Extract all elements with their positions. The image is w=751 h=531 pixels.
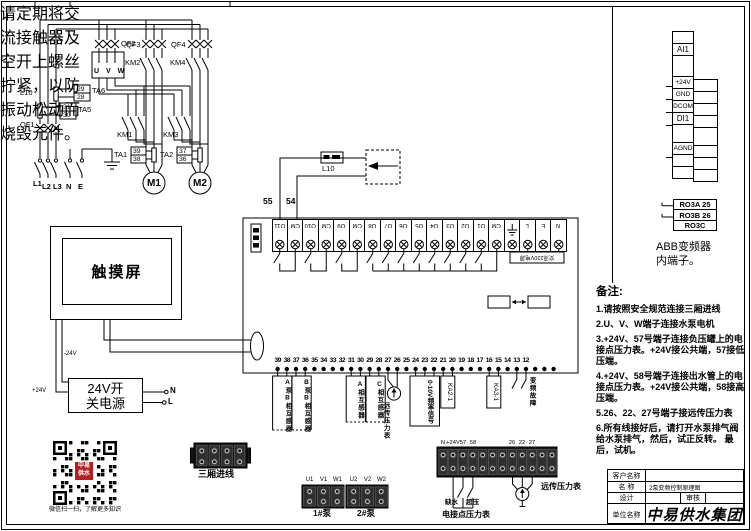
notes-title: 备注:	[596, 283, 746, 299]
freq-signal-label: 0-10V频率信号	[417, 379, 433, 424]
phase-label-e: E	[78, 183, 83, 191]
terminal-cell: O10	[303, 219, 319, 252]
motor-m1-label: M1	[143, 178, 165, 189]
psu-n-label: N	[170, 387, 176, 396]
phase-label-l1: L1	[33, 180, 42, 188]
remote-gauge-label: 远传压力表	[382, 402, 389, 444]
terminal-cell: CM	[319, 219, 335, 252]
ka3-contact-label: KA3-1	[489, 379, 499, 406]
design-value	[646, 493, 681, 504]
hmi-label: 触摸屏	[91, 261, 142, 282]
mains-in-label: 三厢进线	[198, 470, 234, 480]
pressure-label-22: 22	[517, 440, 527, 446]
wire-label-54: 54	[286, 197, 295, 206]
incoming-disconnects	[35, 149, 84, 178]
remote-gauge-label-2: 远传压力表	[541, 483, 581, 492]
sensor-label: L10	[322, 165, 335, 173]
switch-low-label: 缺水	[445, 499, 458, 506]
name-label: 名 称	[608, 482, 646, 493]
terminal-cell: O6	[396, 219, 412, 252]
pressure-label-26: 26	[507, 440, 517, 446]
contact-gauge-label: 电接点压力表	[442, 511, 490, 520]
line-label-l10: L10	[20, 89, 33, 97]
ct-label-ta6: TA6	[92, 87, 105, 95]
hmi-screen: 触摸屏	[62, 238, 172, 305]
breaker-label-qf1: QF1	[20, 121, 35, 129]
ka2-contact-label: KA2-1	[443, 379, 453, 406]
terminal-cell: CM	[489, 219, 505, 252]
ct-label-ta1: TA1	[114, 151, 127, 159]
contactor-label-km1: KM1	[117, 131, 132, 139]
ta2-terminal: 36	[179, 156, 187, 163]
contactor-label-km4: KM4	[170, 59, 185, 67]
name-value: 2泵变频控制原理图	[646, 482, 743, 493]
terminal-cell: CM	[288, 219, 304, 252]
customer-label: 客户名称	[608, 470, 646, 482]
contactor-label-km2: KM2	[125, 59, 140, 67]
terminal-cell: O5	[412, 219, 428, 252]
pressure-label-58: 58	[468, 440, 478, 446]
vfd-fault-label: 变频故障	[528, 377, 535, 415]
note-item: 5.26、22、27号端子接远传压力表	[596, 408, 746, 419]
psu-plus24-label: +24V	[32, 388, 46, 395]
controller-bottom-terminal-numbers: 39 38 37 36 35 34 33 32 31 30 29 28 27 2…	[273, 357, 530, 364]
pump1-label: 1#泵	[313, 509, 331, 518]
ta5-terminal: 30	[63, 112, 71, 119]
ta6-terminal: 29	[77, 86, 85, 93]
phase-label-l3: L3	[53, 183, 62, 191]
psu-l-label: L	[168, 398, 173, 407]
terminal-cell: N	[551, 219, 567, 252]
note-item: 6.所有线接好后，请打开水泵排气阀给水泵排气，然后，试正反转。 最后，试机。	[596, 423, 746, 456]
terminal-cell: O11	[272, 219, 288, 252]
terminal-cell-earth	[505, 219, 521, 252]
abb-relay-terminal-table: RO3A 25 RO3B 26 RO3C	[673, 200, 717, 231]
pump2-terminal-v2: V2	[361, 477, 374, 484]
contactor-label-km3: KM3	[163, 131, 178, 139]
pump1-terminal-v1: V1	[317, 477, 330, 484]
phase-label-n: N	[66, 183, 71, 191]
ct-label-ta5: TA5	[78, 106, 91, 114]
qr-logo: 中易供水	[75, 462, 93, 480]
ct-label-ta2: TA2	[160, 151, 173, 159]
review-value	[706, 493, 743, 504]
pump1-terminal-w1: W1	[331, 477, 344, 484]
breaker-label-qf4: QF4	[171, 41, 186, 49]
note-item: 3.+24V、57号端子连接负压罐上的电接点压力表。+24V接公共端，57接低压…	[596, 334, 746, 367]
terminal-cell: O7	[381, 219, 397, 252]
ta5-terminal: 31	[63, 104, 71, 111]
terminal-cell: O2	[458, 219, 474, 252]
notes-section: 备注: 1.请按照安全规范连接三厢进线 2.U、V、W端子连接水泵电机 3.+2…	[596, 283, 746, 460]
pressure-label-57: 57	[458, 440, 468, 446]
ta1-terminal: 38	[133, 156, 141, 163]
breaker-label-qf3: QF3	[126, 41, 141, 49]
ct-phase-c-label: C相互感器	[367, 379, 383, 420]
note-item: 2.U、V、W端子连接水泵电机	[596, 319, 746, 330]
pump1-block	[302, 485, 344, 508]
pump2-block	[346, 485, 388, 508]
vfd-uvw-label: U V W	[94, 68, 127, 76]
company-label: 单位名称	[608, 504, 646, 525]
note-item: 1.请按照安全规范连接三厢进线	[596, 304, 746, 315]
pump2-label: 2#泵	[357, 509, 375, 518]
phase-label-l2: L2	[42, 183, 51, 191]
note-item: 4.+24V、58号端子连接出水管上的电接点压力表。+24V接公共端，58接高压…	[596, 371, 746, 404]
abb-caption-line2: 内端子。	[656, 255, 700, 267]
controller-top-terminal-strip: O11 CM O10 CM O9 CM O8 O7 O6 O5 O4 O3 O2…	[272, 219, 567, 252]
customer-value	[646, 470, 743, 482]
terminal-cell: O9	[334, 219, 350, 252]
review-label: 审核	[681, 493, 706, 504]
pressure-label-27: 27	[527, 440, 537, 446]
pump2-terminal-w2: W2	[375, 477, 388, 484]
terminal-cell: E	[536, 219, 552, 252]
abb-io-terminal-column: AI1 +24V GND DCOM DI1 AGND	[672, 32, 694, 179]
wire-label-55: 55	[263, 197, 272, 206]
company-value: 中易供水集团	[646, 504, 743, 525]
psu-box: 24V开关电源	[68, 378, 143, 413]
terminal-cell: O1	[474, 219, 490, 252]
terminal-cell: CM	[350, 219, 366, 252]
sensor-symbol	[280, 150, 400, 219]
ta6-terminal: 28	[77, 94, 85, 101]
ct-phase-a-label: A相互感器	[348, 379, 364, 420]
terminal-cell: O8	[365, 219, 381, 252]
abb-caption-line1: ABB变频器	[656, 241, 711, 253]
mains-box-label: 交流220V电源	[510, 254, 564, 260]
psu-minus24-label: -24V	[64, 351, 77, 358]
terminal-cell: O3	[443, 219, 459, 252]
ta2-terminal: 37	[179, 148, 187, 155]
terminal-cell: O4	[427, 219, 443, 252]
schematic-page: { "warning":{"lines":["请定期将交","流接触器及","空…	[0, 0, 751, 531]
ta1-terminal: 39	[133, 148, 141, 155]
bottom-terminal-dots	[275, 367, 555, 371]
title-block: 客户名称 名 称 2泵变频控制原理图 设计 审核 单位名称 中易供水集团	[607, 469, 744, 524]
ct-pump-a-label: A泵B相互感器	[274, 379, 291, 429]
motor-m2-label: M2	[189, 178, 211, 189]
terminal-cell: L	[520, 219, 536, 252]
switch-high-label: 超压	[466, 499, 479, 506]
pump2-terminal-u2: U2	[347, 477, 360, 484]
abb-io-terminal-column-right	[693, 80, 718, 182]
design-label: 设计	[608, 493, 646, 504]
ct-pump-b-label: B泵B相互感器	[293, 379, 310, 429]
mains-in-block	[191, 443, 251, 468]
qr-caption: 微信扫一扫，了解更多知识	[39, 507, 131, 514]
serial-port-icon	[251, 332, 264, 360]
pump1-terminal-u1: U1	[303, 477, 316, 484]
